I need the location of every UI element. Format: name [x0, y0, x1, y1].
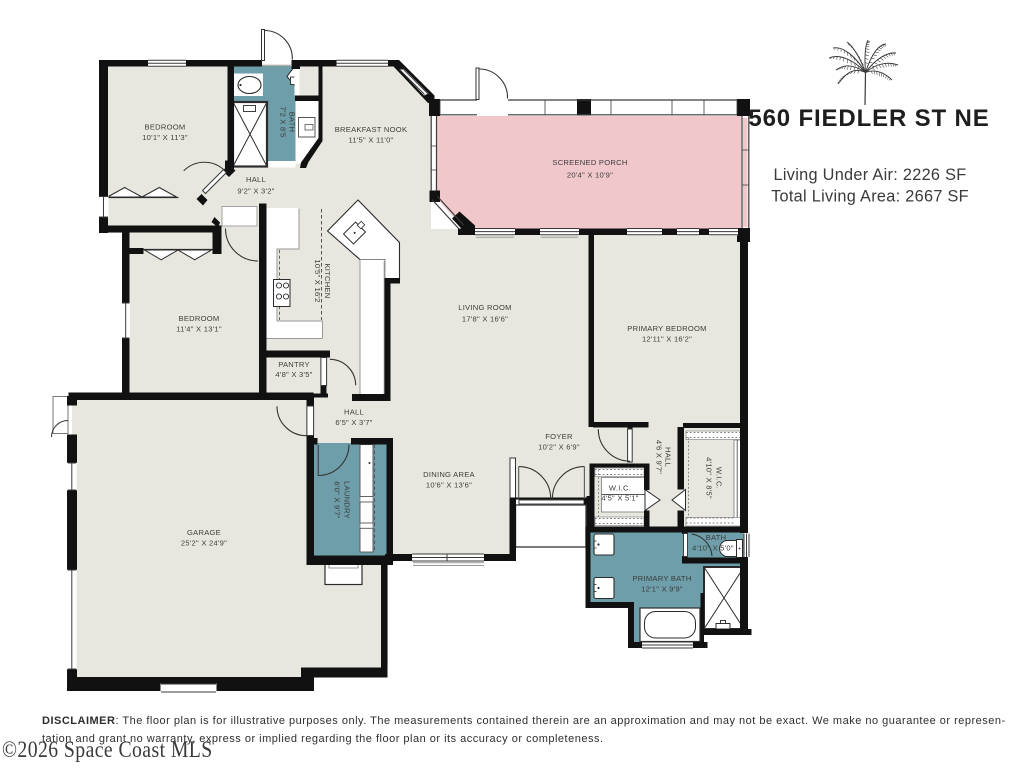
svg-text:4'5" X 5'1": 4'5" X 5'1" [601, 494, 638, 503]
svg-text:7'2 X 8'5: 7'2 X 8'5 [279, 107, 288, 138]
svg-text:BATH: BATH [288, 112, 297, 133]
svg-text:9'2" X 3'2": 9'2" X 3'2" [237, 187, 274, 196]
svg-text:11'5" X 11'0": 11'5" X 11'0" [348, 136, 393, 145]
svg-text:4'10" X 5'0": 4'10" X 5'0" [692, 544, 734, 553]
svg-text:W.I.C.: W.I.C. [609, 484, 631, 493]
svg-text:HALL: HALL [246, 175, 266, 184]
svg-text:HALL: HALL [664, 447, 673, 467]
svg-text:Total Living Area: 2667 SF: Total Living Area: 2667 SF [771, 188, 969, 206]
svg-text:12'1" X 9'9": 12'1" X 9'9" [641, 585, 683, 594]
svg-text:PRIMARY BEDROOM: PRIMARY BEDROOM [627, 324, 706, 333]
svg-text:11'4" X 13'1": 11'4" X 13'1" [176, 325, 222, 334]
svg-text:BATH: BATH [706, 533, 727, 542]
svg-text:DINING AREA: DINING AREA [423, 470, 475, 479]
svg-text:BEDROOM: BEDROOM [179, 314, 220, 323]
svg-text:W.I.C.: W.I.C. [715, 467, 724, 489]
svg-text:10'2" X 6'9": 10'2" X 6'9" [538, 443, 580, 452]
svg-text:4'10" X 8'5": 4'10" X 8'5" [705, 457, 714, 499]
svg-text:10'5" X 16'2: 10'5" X 16'2 [313, 259, 322, 302]
svg-text:DISCLAIMER: The floor plan is: DISCLAIMER: The floor plan is for illust… [42, 715, 1006, 727]
svg-text:4'6 X 9'7": 4'6 X 9'7" [655, 440, 664, 474]
svg-text:Living Under Air: 2226 SF: Living Under Air: 2226 SF [773, 166, 966, 184]
svg-text:20'4" X 10'9": 20'4" X 10'9" [567, 171, 613, 180]
svg-text:17'8" X 16'6": 17'8" X 16'6" [462, 315, 508, 324]
svg-text:12'11" X 16'2": 12'11" X 16'2" [642, 335, 692, 344]
svg-text:6'5" X 3'7": 6'5" X 3'7" [335, 418, 372, 427]
svg-text:LIVING ROOM: LIVING ROOM [458, 303, 511, 312]
svg-text:©2026 Space Coast MLS: ©2026 Space Coast MLS [2, 736, 213, 762]
svg-text:25'2" X 24'9": 25'2" X 24'9" [181, 539, 227, 548]
svg-text:BEDROOM: BEDROOM [145, 123, 186, 132]
svg-text:LAUNDRY: LAUNDRY [343, 481, 352, 519]
svg-text:10'1" X 11'3": 10'1" X 11'3" [142, 133, 188, 142]
svg-text:BREAKFAST NOOK: BREAKFAST NOOK [335, 125, 408, 134]
svg-text:10'6" X 13'6": 10'6" X 13'6" [426, 481, 472, 490]
svg-text:GARAGE: GARAGE [187, 528, 221, 537]
svg-text:PRIMARY BATH: PRIMARY BATH [632, 574, 691, 583]
svg-text:6'0" X 9'7": 6'0" X 9'7" [333, 481, 342, 518]
svg-text:KITCHEN: KITCHEN [323, 263, 332, 298]
svg-text:4'8" X 3'5": 4'8" X 3'5" [275, 370, 312, 379]
svg-text:FOYER: FOYER [545, 432, 573, 441]
svg-text:560 FIEDLER ST NE: 560 FIEDLER ST NE [748, 105, 989, 132]
svg-text:HALL: HALL [344, 408, 364, 417]
svg-text:PANTRY: PANTRY [278, 360, 310, 369]
svg-text:SCREENED PORCH: SCREENED PORCH [552, 158, 627, 167]
